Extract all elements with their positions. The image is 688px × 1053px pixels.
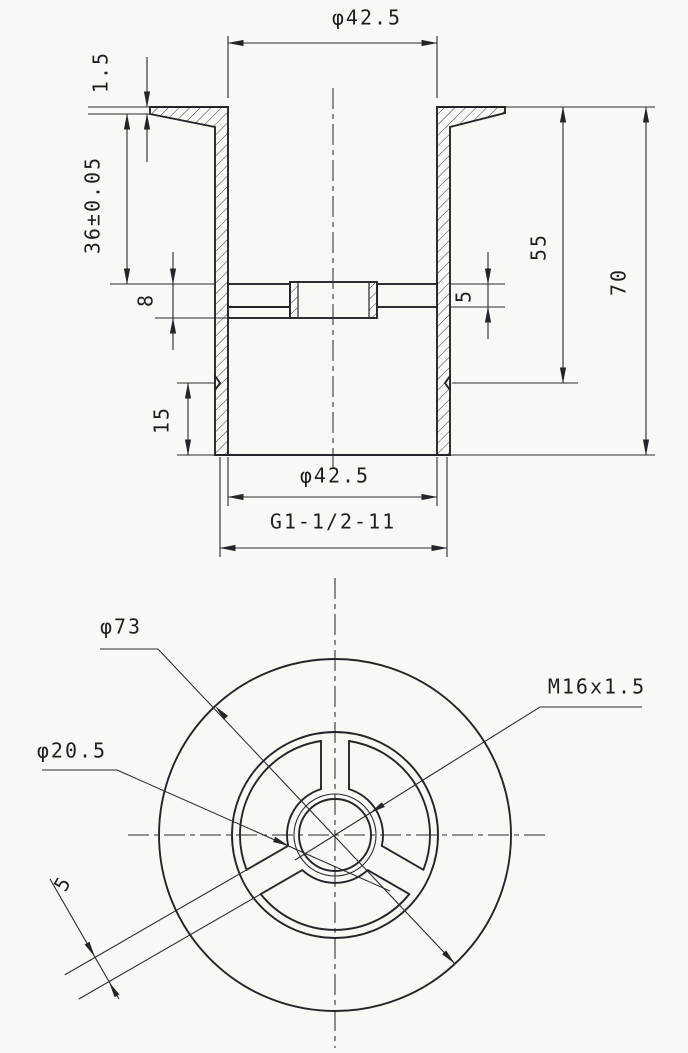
- section-view: φ42.5 1.5 36±0.05 8: [81, 6, 656, 558]
- dim-flange-thickness-label: 1.5: [89, 51, 113, 93]
- dim-web-thickness: 5: [49, 846, 303, 999]
- dim-dia-bottom-label: φ42.5: [300, 464, 370, 488]
- dim-depth-to-web: 36±0.05: [81, 114, 216, 284]
- spoke-lower-left: [247, 846, 303, 894]
- dim-dia-top-label: φ42.5: [332, 6, 402, 30]
- technical-drawing: φ42.5 1.5 36±0.05 8: [0, 0, 688, 1053]
- hub-right-wall: [369, 282, 377, 318]
- dim-depth-to-web-label: 36±0.05: [81, 156, 105, 254]
- dim-total-height-label: 70: [607, 268, 631, 296]
- dim-dia-outer-label: φ73: [100, 615, 142, 639]
- dim-thread-hole: M16x1.5: [295, 675, 646, 861]
- dim-web-right-height-label: 5: [452, 289, 476, 303]
- dim-len-to-thread: 55: [452, 107, 655, 383]
- dim-len-to-thread-label: 55: [527, 233, 551, 261]
- hub-left-wall: [290, 282, 298, 318]
- web-left-bar: [228, 284, 290, 318]
- dim-web-left-height: 8: [134, 252, 229, 350]
- dim-dia-boss: φ20.5: [37, 739, 390, 892]
- dim-dia-top: φ42.5: [228, 6, 437, 99]
- plan-view: φ73 M16x1.5 φ20.5 5: [37, 578, 646, 1048]
- web-right-bar: [377, 284, 437, 307]
- dim-dia-boss-label: φ20.5: [37, 739, 107, 763]
- dim-web-left-height-label: 8: [134, 293, 158, 307]
- right-wall-section: [437, 107, 505, 455]
- dim-total-height: 70: [177, 107, 655, 455]
- dim-thread-hole-label: M16x1.5: [548, 675, 646, 699]
- drawing-sheet: φ42.5 1.5 36±0.05 8: [0, 0, 688, 1053]
- dim-pipe-thread-label: G1-1/2-11: [270, 510, 396, 534]
- dim-flange-thickness: 1.5: [88, 51, 150, 162]
- dim-web-right-height: 5: [450, 252, 505, 339]
- left-wall-section: [150, 107, 228, 455]
- spoke-lower-right: [368, 846, 424, 894]
- dim-thread-length: 15: [150, 383, 216, 455]
- dim-web-thickness-label: 5: [49, 871, 77, 895]
- dim-dia-bottom: φ42.5: [228, 457, 437, 506]
- dim-thread-length-label: 15: [150, 406, 174, 434]
